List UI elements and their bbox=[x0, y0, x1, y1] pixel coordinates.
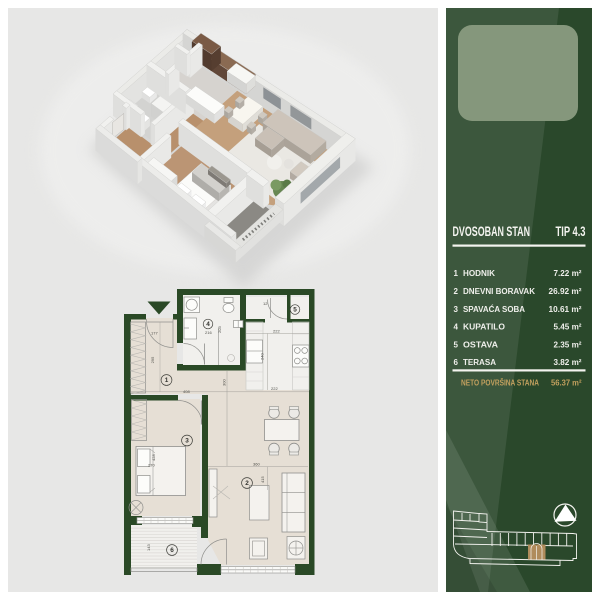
svg-text:KUPATILO: KUPATILO bbox=[463, 323, 505, 332]
svg-text:216: 216 bbox=[205, 330, 212, 335]
svg-text:143: 143 bbox=[146, 544, 151, 551]
svg-text:TERASA: TERASA bbox=[463, 358, 496, 367]
svg-text:177: 177 bbox=[151, 331, 158, 336]
svg-text:6: 6 bbox=[454, 358, 459, 367]
svg-text:5: 5 bbox=[454, 340, 459, 349]
svg-text:DVOSOBAN STAN: DVOSOBAN STAN bbox=[453, 224, 531, 239]
svg-text:12: 12 bbox=[263, 301, 268, 306]
svg-text:203: 203 bbox=[217, 326, 222, 333]
svg-text:SPAVAĆA SOBA: SPAVAĆA SOBA bbox=[463, 305, 525, 314]
svg-text:1: 1 bbox=[165, 377, 169, 384]
svg-text:3.82 m²: 3.82 m² bbox=[554, 358, 582, 367]
svg-text:3: 3 bbox=[185, 438, 189, 445]
svg-text:5: 5 bbox=[293, 307, 297, 314]
svg-text:2.35 m²: 2.35 m² bbox=[554, 340, 582, 349]
svg-text:408: 408 bbox=[183, 389, 190, 394]
svg-text:56.37 m²: 56.37 m² bbox=[551, 377, 582, 387]
svg-text:DNEVNI BORAVAK: DNEVNI BORAVAK bbox=[463, 287, 535, 296]
svg-text:TIP 4.3: TIP 4.3 bbox=[556, 224, 586, 239]
svg-text:6: 6 bbox=[170, 547, 174, 554]
svg-text:7.22 m²: 7.22 m² bbox=[554, 269, 582, 278]
svg-text:HODNIK: HODNIK bbox=[463, 269, 495, 278]
svg-text:295: 295 bbox=[150, 356, 155, 363]
svg-text:10.61 m²: 10.61 m² bbox=[549, 305, 582, 314]
svg-text:4: 4 bbox=[206, 321, 210, 328]
svg-text:OSTAVA: OSTAVA bbox=[463, 340, 498, 349]
svg-text:4: 4 bbox=[454, 323, 459, 332]
svg-text:5.45 m²: 5.45 m² bbox=[554, 323, 582, 332]
svg-text:3: 3 bbox=[454, 305, 459, 314]
svg-text:240: 240 bbox=[260, 353, 265, 360]
svg-text:222: 222 bbox=[271, 386, 278, 391]
svg-text:2: 2 bbox=[245, 480, 249, 487]
svg-text:1: 1 bbox=[454, 269, 459, 278]
svg-text:415: 415 bbox=[260, 476, 265, 483]
svg-text:NETO POVRŠINA STANA: NETO POVRŠINA STANA bbox=[461, 376, 539, 387]
svg-text:428: 428 bbox=[151, 454, 156, 461]
svg-text:270: 270 bbox=[148, 463, 155, 468]
svg-text:2: 2 bbox=[454, 287, 459, 296]
svg-text:222: 222 bbox=[273, 329, 280, 334]
svg-text:360: 360 bbox=[253, 462, 260, 467]
svg-text:26.92 m²: 26.92 m² bbox=[549, 287, 582, 296]
svg-text:300: 300 bbox=[222, 379, 227, 386]
